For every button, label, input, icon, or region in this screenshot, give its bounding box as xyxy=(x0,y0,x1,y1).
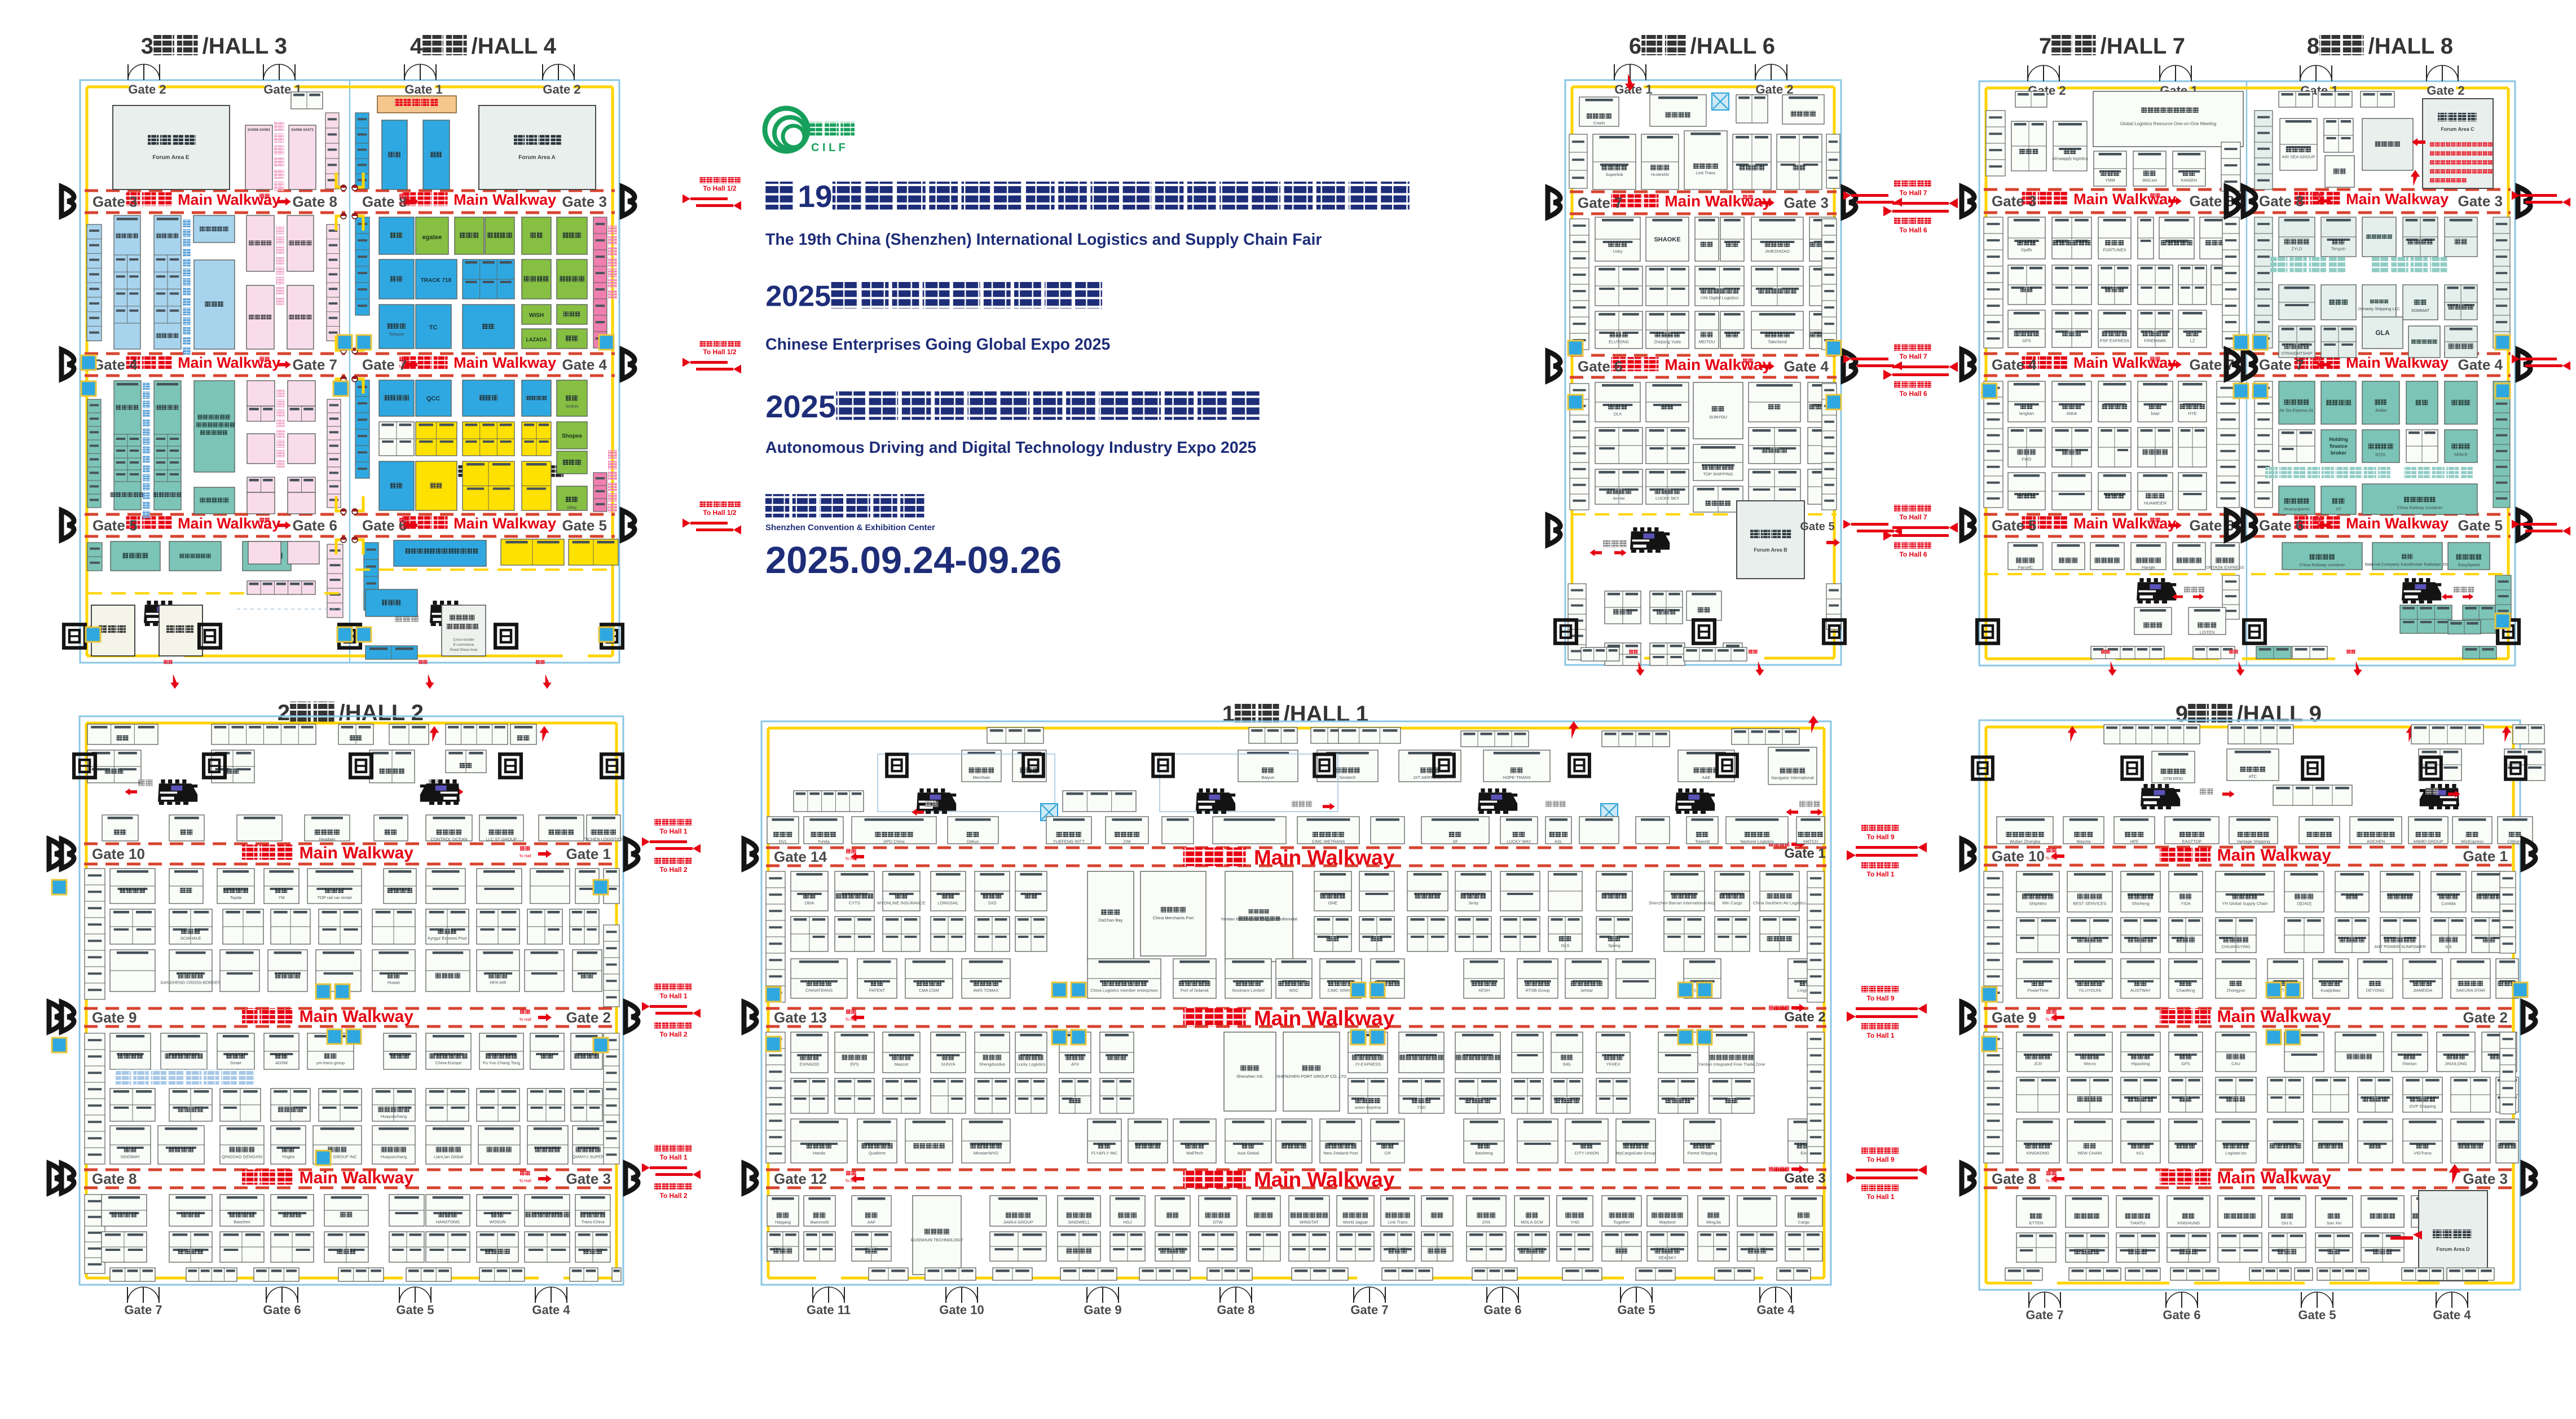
svg-text:HOPE-TRANS: HOPE-TRANS xyxy=(1503,775,1530,780)
svg-text:FWD: FWD xyxy=(2022,457,2032,462)
svg-text:SXD: SXD xyxy=(988,901,997,906)
svg-text:langtian: langtian xyxy=(2019,411,2034,416)
svg-text:D[DAD]: D[DAD] xyxy=(2297,901,2311,906)
svg-text:Jinlian: Jinlian xyxy=(2375,408,2386,413)
svg-text:To Hall 1: To Hall 1 xyxy=(1866,1193,1894,1201)
svg-text:To Hall 7: To Hall 7 xyxy=(1899,352,1927,360)
svg-text:LUCKY SKY: LUCKY SKY xyxy=(1655,496,1679,501)
svg-text:To Hall: To Hall xyxy=(258,365,271,369)
svg-text:The 19th China (Shenzhen) Inte: The 19th China (Shenzhen) International … xyxy=(765,231,1322,249)
svg-text:GLS: GLS xyxy=(1561,943,1569,948)
svg-text:Main Walkway: Main Walkway xyxy=(1254,846,1395,869)
svg-text:LUCKY WAY: LUCKY WAY xyxy=(1507,839,1531,844)
svg-text:SF: SF xyxy=(1452,839,1458,844)
svg-text:Gate 7: Gate 7 xyxy=(2025,1308,2063,1322)
svg-text:Gate 7: Gate 7 xyxy=(2259,356,2304,373)
svg-text:JIHEZHIZAO: JIHEZHIZAO xyxy=(1765,249,1790,254)
svg-text:Gate 7: Gate 7 xyxy=(1350,1303,1388,1317)
svg-text:4: 4 xyxy=(410,34,423,59)
svg-text:Asia Global: Asia Global xyxy=(1238,1151,1260,1156)
svg-text:/HALL 3: /HALL 3 xyxy=(202,34,287,59)
svg-text:To Hall 7: To Hall 7 xyxy=(1899,513,1927,521)
svg-text:Main Walkway: Main Walkway xyxy=(1254,1168,1395,1191)
svg-text:Main Walkway: Main Walkway xyxy=(453,354,556,371)
svg-text:To Hall 1: To Hall 1 xyxy=(659,1153,687,1161)
svg-text:broker: broker xyxy=(2331,450,2347,456)
svg-text:SAKURA STAR: SAKURA STAR xyxy=(2456,988,2486,993)
svg-text:ASL: ASL xyxy=(1555,839,1562,844)
svg-text:SEA SKY: SEA SKY xyxy=(1658,1255,1676,1261)
svg-text:JIARUI GROUP: JIARUI GROUP xyxy=(1003,1220,1033,1225)
svg-text:Hipacking: Hipacking xyxy=(2132,1061,2150,1067)
svg-text:CONTROL OCEAN: CONTROL OCEAN xyxy=(430,836,467,841)
svg-text:HANSTONG: HANSTONG xyxy=(436,1219,460,1224)
svg-text:Gate 1: Gate 1 xyxy=(404,82,442,96)
svg-text:XESH: XESH xyxy=(1478,988,1490,993)
svg-text:CIMC XINHUI: CIMC XINHUI xyxy=(1328,988,1354,993)
svg-text:Sinotech: Sinotech xyxy=(1339,775,1355,780)
svg-text:GFS: GFS xyxy=(2022,338,2031,343)
svg-text:China Southern Air Logistics: China Southern Air Logistics xyxy=(1753,901,1806,906)
svg-text:ANT POWER SUNPOWER: ANT POWER SUNPOWER xyxy=(2374,944,2426,949)
svg-text:National Company Kazakhstan Ra: National Company Kazakhstan Railways JSC xyxy=(2364,562,2450,567)
svg-text:To Hall: To Hall xyxy=(1742,204,1754,208)
svg-text:AOCHEN: AOCHEN xyxy=(2367,839,2385,844)
svg-text:To Hall 6: To Hall 6 xyxy=(1899,390,1927,398)
svg-text:Gate 4: Gate 4 xyxy=(562,356,607,373)
svg-text:RZDL: RZDL xyxy=(2375,452,2386,457)
svg-text:egatee: egatee xyxy=(422,234,442,241)
svg-text:Lucky Logistics: Lucky Logistics xyxy=(1017,1062,1046,1067)
svg-text:To Hall 1/2: To Hall 1/2 xyxy=(703,184,736,192)
svg-text:Main Walkway: Main Walkway xyxy=(2346,515,2449,532)
svg-text:Jenty: Jenty xyxy=(1468,901,1478,906)
svg-text:KINGKONG: KINGKONG xyxy=(2027,1151,2050,1156)
svg-text:DEYONG: DEYONG xyxy=(2366,988,2385,993)
svg-text:Baisheng: Baisheng xyxy=(1475,1151,1492,1156)
svg-text:8: 8 xyxy=(2307,34,2319,59)
svg-text:TOP rail car rental: TOP rail car rental xyxy=(318,895,352,900)
svg-text:YUEFENG INT'T: YUEFENG INT'T xyxy=(1053,839,1085,844)
svg-text:Forum Area E: Forum Area E xyxy=(152,155,190,161)
svg-text:SOMMAT: SOMMAT xyxy=(2411,308,2430,313)
svg-text:Gate 6: Gate 6 xyxy=(293,517,338,534)
svg-text:ETTEN: ETTEN xyxy=(2029,1220,2044,1226)
svg-text:Spring: Spring xyxy=(1608,943,1621,948)
svg-text:3A068-3A071: 3A068-3A071 xyxy=(291,128,314,132)
svg-text:ZYLD: ZYLD xyxy=(2291,246,2302,252)
svg-text:Gate 9: Gate 9 xyxy=(92,1009,137,1026)
svg-text:To Hall 9: To Hall 9 xyxy=(1866,1156,1894,1164)
svg-text:4PX: 4PX xyxy=(1071,1062,1079,1067)
svg-text:DTB RFID: DTB RFID xyxy=(2164,776,2183,781)
svg-text:Gate 3: Gate 3 xyxy=(2463,1170,2508,1187)
svg-text:Mammoth: Mammoth xyxy=(810,1220,829,1225)
svg-text:Cross-border: Cross-border xyxy=(453,638,475,642)
svg-text:Trans-China: Trans-China xyxy=(582,1219,605,1224)
svg-text:ONTASK EXPRESS: ONTASK EXPRESS xyxy=(2206,565,2244,570)
svg-text:Zhongyun: Zhongyun xyxy=(2226,988,2245,993)
svg-text:China Logistics member enterpr: China Logistics member enterprises xyxy=(1090,988,1158,993)
svg-text:AAF: AAF xyxy=(868,1220,876,1225)
svg-text:AAE: AAE xyxy=(1702,775,1710,780)
svg-text:Qualtime: Qualtime xyxy=(869,1151,886,1156)
svg-text:To Hall 6: To Hall 6 xyxy=(1899,550,1927,558)
svg-text:2025: 2025 xyxy=(765,389,836,424)
svg-text:Headwin: Headwin xyxy=(319,836,335,841)
svg-text:Tengxin: Tengxin xyxy=(2331,246,2346,252)
svg-text:Gate 4: Gate 4 xyxy=(2433,1308,2471,1322)
svg-text:To Hall: To Hall xyxy=(1742,367,1754,371)
svg-text:CHUANGYING: CHUANGYING xyxy=(2222,944,2251,949)
svg-text:Win Cargo: Win Cargo xyxy=(1722,901,1742,906)
svg-text:Wulian Zhongka: Wulian Zhongka xyxy=(2010,839,2041,844)
svg-text:CHINATRANS: CHINATRANS xyxy=(805,988,833,993)
svg-text:FLY&FLY INC: FLY&FLY INC xyxy=(1091,1151,1118,1156)
svg-text:Jetstar: Jetstar xyxy=(1580,988,1593,993)
svg-text:To Hall 1: To Hall 1 xyxy=(1866,870,1894,878)
svg-text:Gate 8: Gate 8 xyxy=(2259,193,2304,210)
svg-text:To Hall 1/2: To Hall 1/2 xyxy=(703,509,736,517)
svg-text:LISTEN: LISTEN xyxy=(2200,629,2214,634)
svg-text:Main Walkway: Main Walkway xyxy=(1665,192,1771,210)
svg-text:DaChan Bay: DaChan Bay xyxy=(1099,918,1123,923)
svg-text:Global Logistics Resource One-: Global Logistics Resource One-on-One Mee… xyxy=(2120,121,2216,126)
svg-text:Gate 2: Gate 2 xyxy=(543,82,580,96)
svg-text:To Hall 7: To Hall 7 xyxy=(1899,189,1927,197)
svg-text:To Hall: To Hall xyxy=(258,526,271,530)
svg-text:Shicheng: Shicheng xyxy=(2132,901,2149,906)
svg-text:Navigator International: Navigator International xyxy=(1771,775,1814,780)
svg-text:Gate 2: Gate 2 xyxy=(2463,1009,2508,1026)
svg-text:Gate 2: Gate 2 xyxy=(1784,1010,1825,1025)
svg-text:To Hall: To Hall xyxy=(519,1018,531,1022)
svg-text:3A058-3A061: 3A058-3A061 xyxy=(248,128,271,132)
svg-text:Gate 5: Gate 5 xyxy=(1617,1303,1655,1317)
svg-text:Main Walkway: Main Walkway xyxy=(2346,191,2449,208)
svg-text:/HALL 4: /HALL 4 xyxy=(472,34,557,59)
svg-text:PowerTime: PowerTime xyxy=(2027,988,2049,993)
svg-text:Gate 5: Gate 5 xyxy=(93,517,138,534)
svg-text:BEST SERVICES: BEST SERVICES xyxy=(2073,901,2106,906)
svg-text:WinExpress: WinExpress xyxy=(2461,839,2483,844)
svg-text:Gate 8: Gate 8 xyxy=(293,193,338,210)
svg-text:Huayunchang: Huayunchang xyxy=(381,1154,407,1159)
svg-text:To Hall: To Hall xyxy=(2149,365,2161,369)
svg-text:Forum Area C: Forum Area C xyxy=(2441,126,2474,132)
svg-text:eBay: eBay xyxy=(567,505,576,510)
svg-text:YMM: YMM xyxy=(2105,178,2115,183)
svg-text:Yinghe: Yinghe xyxy=(281,1154,294,1159)
svg-text:ONE: ONE xyxy=(1328,901,1337,906)
svg-text:EXINGOO: EXINGOO xyxy=(799,1062,819,1067)
svg-text:JY-EXPRESS: JY-EXPRESS xyxy=(1355,1062,1381,1067)
svg-text:Mascot: Mascot xyxy=(895,1062,909,1067)
svg-text:TOP SHIPPING: TOP SHIPPING xyxy=(1703,471,1733,477)
svg-text:DPD China: DPD China xyxy=(883,839,905,844)
svg-text:Gate 3: Gate 3 xyxy=(93,193,138,210)
svg-text:Gate 5: Gate 5 xyxy=(2298,1308,2336,1322)
svg-text:Baochen: Baochen xyxy=(234,1219,250,1224)
svg-text:Gate 5: Gate 5 xyxy=(562,517,607,534)
svg-text:Baiyun: Baiyun xyxy=(1262,775,1275,780)
svg-text:Gate 5: Gate 5 xyxy=(2458,517,2503,534)
svg-text:Shenzhen Bao'an International: Shenzhen Bao'an International Airport xyxy=(1649,901,1720,906)
svg-text:Main Walkway: Main Walkway xyxy=(300,1169,414,1187)
svg-text:PATENT: PATENT xyxy=(869,988,886,993)
svg-text:Huaao: Huaao xyxy=(387,980,400,985)
svg-text:JCR: JCR xyxy=(2034,1061,2042,1067)
svg-text:Handa: Handa xyxy=(813,1151,826,1156)
svg-text:MOLA SCM: MOLA SCM xyxy=(1521,1220,1543,1225)
svg-text:Shenzhen Intl.: Shenzhen Intl. xyxy=(1236,1074,1263,1079)
svg-text:Main Walkway: Main Walkway xyxy=(2217,1007,2332,1026)
svg-text:Dpdfx: Dpdfx xyxy=(2021,248,2032,253)
svg-text:Together: Together xyxy=(1613,1220,1630,1225)
svg-text:WINGTAT: WINGTAT xyxy=(1300,1220,1319,1225)
svg-text:Gate 3: Gate 3 xyxy=(1784,195,1829,211)
svg-text:FIREHAWK: FIREHAWK xyxy=(2144,338,2166,343)
svg-text:Gate 3: Gate 3 xyxy=(562,193,607,210)
svg-text:Gate 10: Gate 10 xyxy=(939,1303,984,1317)
svg-text:Neptune Logistics: Neptune Logistics xyxy=(1740,839,1774,844)
svg-text:Gate 7: Gate 7 xyxy=(293,356,338,373)
svg-text:Huanyujiamei: Huanyujiamei xyxy=(2284,506,2310,512)
svg-text:Merchain: Merchain xyxy=(973,775,990,780)
svg-text:GANGHENG CROSS-BORDER: GANGHENG CROSS-BORDER xyxy=(160,980,221,985)
svg-text:China Railway container: China Railway container xyxy=(2300,562,2345,567)
svg-text:2025.09.24-09.26: 2025.09.24-09.26 xyxy=(765,539,1062,581)
svg-text:LAZADA: LAZADA xyxy=(526,337,547,342)
svg-text:XINGHUNG: XINGHUNG xyxy=(2177,1220,2200,1226)
svg-text:FORTUNES: FORTUNES xyxy=(2103,248,2126,253)
svg-text:Wecro: Wecro xyxy=(2084,1061,2096,1067)
svg-text:Dynasty Shipping LLC: Dynasty Shipping LLC xyxy=(2358,306,2401,311)
svg-text:To Hall: To Hall xyxy=(519,854,531,858)
svg-text:SHEIN: SHEIN xyxy=(566,404,579,409)
svg-text:World Jaguar: World Jaguar xyxy=(1343,1220,1368,1225)
svg-text:Dlink: Dlink xyxy=(805,901,814,906)
svg-text:LONGSAIL: LONGSAIL xyxy=(937,901,959,906)
svg-text:HUAHAN: HUAHAN xyxy=(1651,172,1669,177)
svg-text:Gate 4: Gate 4 xyxy=(1756,1303,1795,1317)
svg-text:Shengduoduo: Shengduoduo xyxy=(979,1062,1006,1067)
svg-text:Logistar.inc: Logistar.inc xyxy=(2225,1151,2247,1156)
svg-text:QCC: QCC xyxy=(426,395,441,402)
svg-text:Gate 4: Gate 4 xyxy=(93,356,138,373)
svg-text:Conlida: Conlida xyxy=(2441,901,2456,906)
svg-text:Gate 7: Gate 7 xyxy=(1578,195,1623,211)
svg-text:Kuaijinbao: Kuaijinbao xyxy=(2320,988,2340,993)
svg-text:ShipNitro: ShipNitro xyxy=(2029,901,2047,906)
svg-text:YIDA: YIDA xyxy=(2181,901,2191,906)
svg-text:TakeSend: TakeSend xyxy=(1768,339,1786,344)
svg-text:YSD: YSD xyxy=(1417,1105,1426,1110)
svg-text:/HALL 8: /HALL 8 xyxy=(2368,34,2453,59)
svg-text:QICHEN LOGISTICS: QICHEN LOGISTICS xyxy=(583,836,623,841)
svg-text:SHAOKE: SHAOKE xyxy=(1654,236,1680,243)
svg-text:3: 3 xyxy=(141,34,153,59)
svg-text:Huayunchang: Huayunchang xyxy=(381,1114,407,1119)
svg-text:ADSM: ADSM xyxy=(275,1060,288,1065)
svg-text:Gate 8: Gate 8 xyxy=(1992,1170,2037,1187)
svg-text:Link Trans: Link Trans xyxy=(1388,1220,1408,1225)
svg-text:Chinese Enterprises Going Glob: Chinese Enterprises Going Global Expo 20… xyxy=(765,336,1110,354)
svg-text:Gate 7: Gate 7 xyxy=(124,1303,162,1317)
svg-text:Holding: Holding xyxy=(2329,437,2348,442)
svg-text:Main Walkway: Main Walkway xyxy=(2217,1169,2332,1187)
svg-text:SINOWELL: SINOWELL xyxy=(1068,1220,1090,1225)
svg-text:To Hall: To Hall xyxy=(519,1179,531,1183)
svg-text:ZIM: ZIM xyxy=(1124,839,1131,844)
svg-text:SUNYA: SUNYA xyxy=(941,1062,955,1067)
svg-text:Gate 5: Gate 5 xyxy=(1992,517,2037,534)
svg-text:1: 1 xyxy=(1222,702,1235,726)
svg-text:7: 7 xyxy=(2039,34,2051,59)
svg-text:Port of Gdansk: Port of Gdansk xyxy=(1181,988,1209,993)
svg-text:Link Trans: Link Trans xyxy=(1696,170,1716,175)
svg-text:Gate 14: Gate 14 xyxy=(774,848,827,865)
svg-text:Zhejiang Yuda: Zhejiang Yuda xyxy=(1654,339,1681,344)
svg-text:LLC ST GROUP: LLC ST GROUP xyxy=(486,836,517,841)
svg-text:Gate 8: Gate 8 xyxy=(92,1170,137,1187)
svg-text:MyCargoGate Group: MyCargoGate Group xyxy=(1616,1151,1655,1156)
svg-text:CR: CR xyxy=(1385,1151,1391,1156)
svg-text:Yantian Integrated Free Trade: Yantian Integrated Free Trade Zone xyxy=(1698,1062,1765,1067)
svg-text:Gate 11: Gate 11 xyxy=(807,1303,851,1317)
svg-text:HPF: HPF xyxy=(2130,839,2139,844)
svg-text:DTW: DTW xyxy=(1213,1220,1223,1225)
svg-text:HFH AIR: HFH AIR xyxy=(490,980,507,985)
svg-text:MATCH: MATCH xyxy=(1803,839,1818,844)
svg-text:JIAMEIDA: JIAMEIDA xyxy=(2413,988,2433,993)
svg-text:Gate 6: Gate 6 xyxy=(2163,1308,2200,1322)
svg-text:ATC: ATC xyxy=(2249,774,2257,779)
svg-text:Chaofeng: Chaofeng xyxy=(2177,988,2195,993)
svg-text:Haigang: Haigang xyxy=(775,1220,791,1225)
svg-text:LianLian Global: LianLian Global xyxy=(434,1154,463,1159)
svg-text:finance: finance xyxy=(2330,443,2348,449)
svg-text:MYONLINE INSURANCE: MYONLINE INSURANCE xyxy=(877,901,925,906)
svg-text:EASTTOP: EASTTOP xyxy=(2182,839,2202,844)
svg-text:China Merchants Port: China Merchants Port xyxy=(1153,915,1194,920)
svg-text:RTSB Group: RTSB Group xyxy=(1526,988,1550,993)
svg-text:TRACK 718: TRACK 718 xyxy=(421,277,452,284)
svg-text:ELUTONG: ELUTONG xyxy=(1609,339,1629,344)
svg-text:MingJia: MingJia xyxy=(1706,1220,1721,1225)
svg-text:DLX: DLX xyxy=(1614,412,1622,417)
svg-text:Gate 2: Gate 2 xyxy=(1755,82,1793,96)
svg-text:CITY UNION: CITY UNION xyxy=(1574,1151,1599,1156)
svg-text:Topda: Topda xyxy=(230,895,242,900)
svg-text:Waybest: Waybest xyxy=(1659,1220,1676,1225)
svg-text:Forum Area D: Forum Area D xyxy=(2436,1246,2470,1252)
svg-text:LZ: LZ xyxy=(2190,338,2195,343)
svg-text:CMA CGM: CMA CGM xyxy=(919,988,939,993)
svg-text:AnHai: AnHai xyxy=(1613,496,1625,501)
svg-text:Wayota: Wayota xyxy=(2076,839,2091,844)
svg-text:STRAIGHTSHIP: STRAIGHTSHIP xyxy=(2281,351,2312,356)
svg-text:ym-trans group: ym-trans group xyxy=(316,1060,345,1065)
svg-text:/HALL 7: /HALL 7 xyxy=(2101,34,2185,59)
svg-text:MEITOU: MEITOU xyxy=(1698,339,1715,344)
svg-text:HGJ: HGJ xyxy=(1124,1220,1132,1225)
svg-text:Gate 13: Gate 13 xyxy=(774,1009,827,1026)
svg-text:CIMC WETRANS: CIMC WETRANS xyxy=(1312,839,1345,844)
svg-text:AWS TOMAX: AWS TOMAX xyxy=(973,988,998,993)
svg-text:YFHEX: YFHEX xyxy=(1606,1062,1620,1067)
svg-text:C I L F: C I L F xyxy=(811,142,846,154)
svg-text:Gate 2: Gate 2 xyxy=(2427,83,2464,98)
svg-text:CYTS: CYTS xyxy=(849,901,860,906)
svg-text:GLA: GLA xyxy=(2375,329,2390,337)
svg-text:YHD: YHD xyxy=(1570,1220,1579,1225)
svg-text:/HALL 9: /HALL 9 xyxy=(2237,702,2322,726)
svg-text:Gate 1: Gate 1 xyxy=(566,845,611,862)
svg-text:To Hall 1: To Hall 1 xyxy=(659,827,687,835)
svg-text:ParcelC: ParcelC xyxy=(2018,565,2033,570)
svg-text:Gate 10: Gate 10 xyxy=(1992,848,2045,865)
svg-text:To Hall 6: To Hall 6 xyxy=(1899,226,1927,234)
svg-text:Autonomous Driving and Digital: Autonomous Driving and Digital Technolog… xyxy=(765,439,1257,457)
svg-text:Yunda: Yunda xyxy=(817,839,830,844)
svg-text:Aiduk: Aiduk xyxy=(2067,411,2077,416)
svg-text:China-Europe: China-Europe xyxy=(435,1060,461,1065)
svg-text:Gate 4: Gate 4 xyxy=(532,1303,570,1317)
svg-text:To Hall: To Hall xyxy=(2149,526,2161,530)
svg-text:19: 19 xyxy=(798,179,832,214)
svg-text:Teleport: Teleport xyxy=(389,332,405,337)
svg-text:Gate 12: Gate 12 xyxy=(774,1170,827,1187)
svg-text:To Hall 2: To Hall 2 xyxy=(659,866,687,874)
svg-text:Gate 5: Gate 5 xyxy=(396,1303,434,1317)
svg-text:ZHX: ZHX xyxy=(1482,1220,1491,1225)
svg-text:IMG: IMG xyxy=(1563,1062,1571,1067)
svg-text:NEW CHAIN: NEW CHAIN xyxy=(2078,1151,2102,1156)
svg-text:9: 9 xyxy=(2176,702,2188,726)
svg-text:Oct IL: Oct IL xyxy=(2282,1220,2293,1226)
svg-text:OVP Shipping: OVP Shipping xyxy=(2410,1104,2436,1109)
svg-text:Main Walkway: Main Walkway xyxy=(2217,846,2332,865)
svg-text:Gate 9: Gate 9 xyxy=(1084,1303,1121,1317)
svg-text:Main Walkway: Main Walkway xyxy=(453,191,556,208)
svg-text:union express: union express xyxy=(1355,1105,1381,1110)
svg-text:Sinotrans Limited: Sinotrans Limited xyxy=(1232,988,1265,993)
svg-text:Toworld: Toworld xyxy=(1695,839,1710,844)
svg-text:6: 6 xyxy=(1629,34,1641,59)
svg-text:2025: 2025 xyxy=(765,280,831,313)
svg-text:Yantian International Pingyan: Yantian International Pingyan Multimodal xyxy=(1221,916,1297,922)
svg-text:ANMEI GROUP: ANMEI GROUP xyxy=(2413,839,2443,844)
svg-text:WallTech: WallTech xyxy=(1186,1151,1203,1156)
svg-text:Gate 4: Gate 4 xyxy=(1784,358,1829,375)
svg-text:Gate 10: Gate 10 xyxy=(92,845,145,862)
svg-text:Shenzhen Convention & Exhibiti: Shenzhen Convention & Exhibition Center xyxy=(765,523,935,532)
svg-text:PSP EXPRESS: PSP EXPRESS xyxy=(2100,338,2129,343)
svg-text:To Hall 1: To Hall 1 xyxy=(1866,1032,1894,1039)
svg-text:China Railway container: China Railway container xyxy=(2397,505,2443,510)
svg-text:QINGDAO GENGXIN: QINGDAO GENGXIN xyxy=(222,1154,262,1159)
svg-text:GUOSHUN TECHNOLOGY: GUOSHUN TECHNOLOGY xyxy=(911,1237,963,1242)
svg-text:360Lion: 360Lion xyxy=(2142,178,2157,183)
svg-text:Gate 2: Gate 2 xyxy=(128,82,166,96)
svg-text:Superlink: Superlink xyxy=(1605,172,1623,177)
svg-text:Main Walkway: Main Walkway xyxy=(300,844,414,862)
svg-text:Vantage Shipping: Vantage Shipping xyxy=(2237,839,2270,844)
svg-text:Gate 3: Gate 3 xyxy=(566,1170,611,1187)
svg-text:E-commerce: E-commerce xyxy=(453,643,474,647)
svg-text:To Hall 1/2: To Hall 1/2 xyxy=(703,348,736,356)
